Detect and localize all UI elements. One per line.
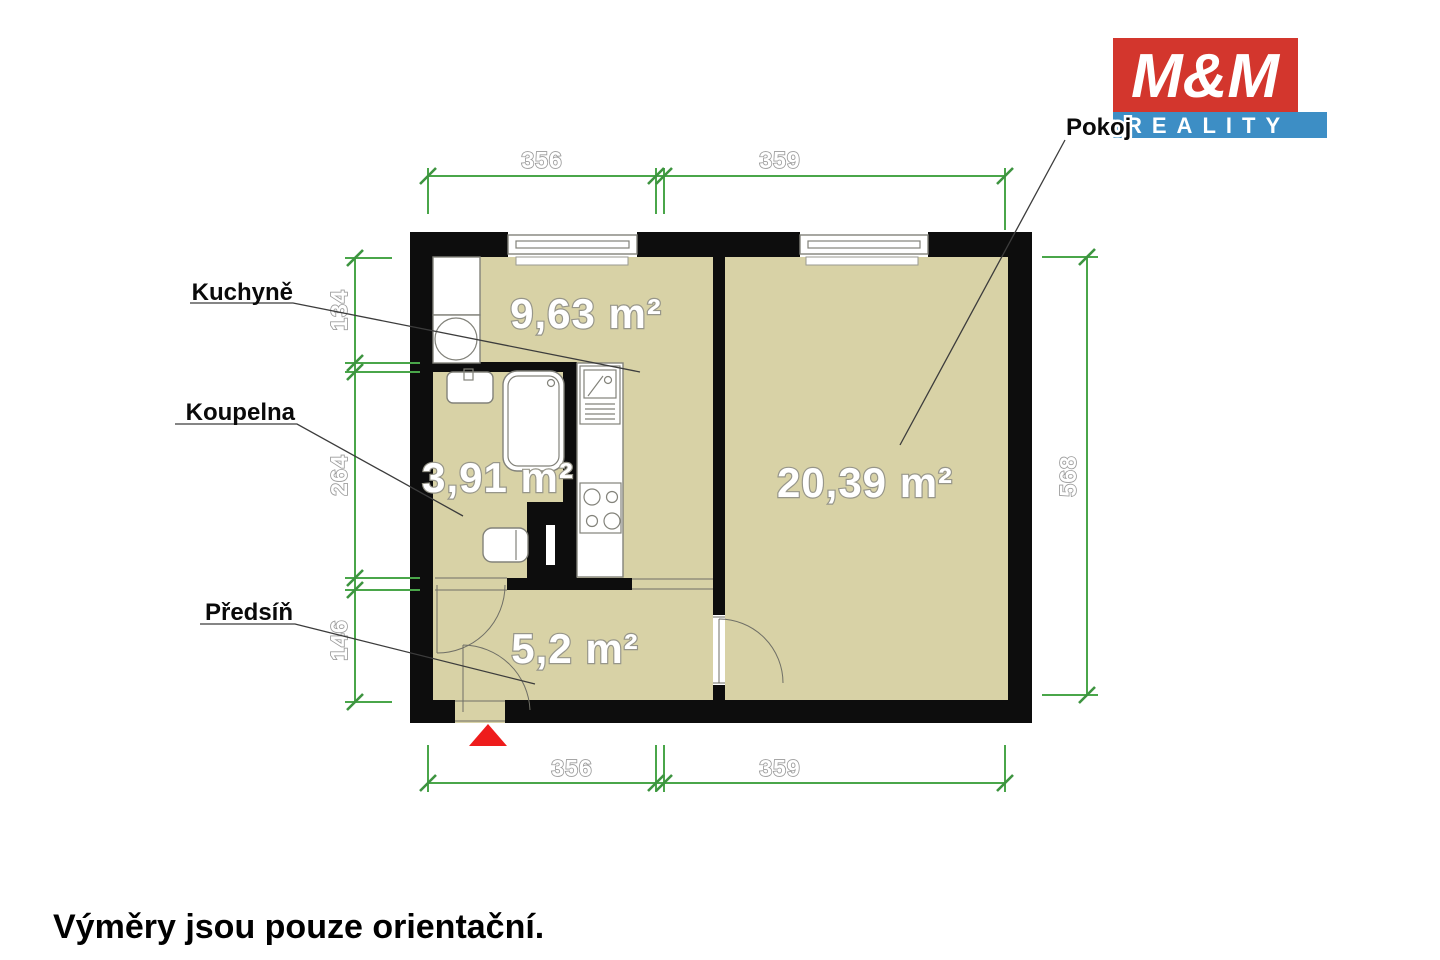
dim-left-mid-value: 264	[326, 454, 352, 495]
wall-kitchen-room-divider	[713, 257, 725, 615]
room-area-label: 20,39 m²	[777, 459, 953, 506]
wall-right	[1008, 232, 1032, 723]
wall-top-middle	[637, 232, 800, 257]
floor-plan-svg: 356 359 356 359 134 264 146 568 9,63 m² …	[0, 0, 1440, 960]
disclaimer-text: Výměry jsou pouze orientační.	[53, 908, 544, 946]
kitchen-area-label: 9,63 m²	[510, 290, 662, 337]
toilet	[483, 528, 528, 562]
radiator-room	[806, 257, 918, 265]
shaft-slit	[546, 525, 555, 565]
fridge	[433, 257, 480, 315]
dim-bottom-right-value: 359	[759, 755, 800, 781]
mm-reality-logo: M&M REALITY	[1113, 38, 1327, 138]
window-room	[800, 235, 928, 254]
kitchen-name-label: Kuchyně	[192, 279, 293, 306]
washbasin	[447, 372, 493, 403]
hall-area-label: 5,2 m²	[511, 625, 638, 672]
wall-room-door-jamb	[713, 685, 725, 700]
dim-bottom-left-value: 356	[551, 755, 592, 781]
window-kitchen	[508, 235, 637, 254]
wall-bottom-right	[505, 700, 1032, 723]
bathroom-name-label: Koupelna	[186, 399, 296, 426]
entrance-arrow-icon	[469, 724, 507, 746]
logo-reality-text: REALITY	[1126, 113, 1290, 138]
radiator-kitchen	[516, 257, 628, 265]
room-name-label: Pokoj	[1066, 114, 1131, 141]
wall-bottom-left	[410, 700, 455, 723]
logo-mm-text: M&M	[1131, 42, 1280, 111]
dim-top-left-value: 356	[521, 147, 562, 173]
wall-hall-top	[507, 578, 632, 590]
dim-top-right-value: 359	[759, 147, 800, 173]
floor-plan-page: 356 359 356 359 134 264 146 568 9,63 m² …	[0, 0, 1440, 960]
bathroom-area-label: 3,91 m²	[422, 454, 574, 501]
dim-right-value: 568	[1055, 455, 1081, 496]
hall-name-label: Předsíň	[205, 599, 293, 626]
dim-left-bottom-value: 146	[326, 619, 352, 660]
